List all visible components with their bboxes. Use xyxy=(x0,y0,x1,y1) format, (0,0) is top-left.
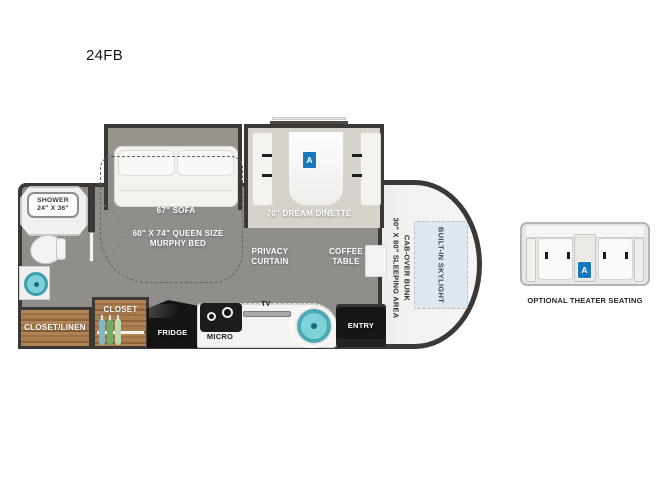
cupholder-mark xyxy=(545,252,548,259)
burner-icon xyxy=(222,307,233,318)
option-a-marker-dinette: A xyxy=(303,152,316,168)
cupholder-mark xyxy=(603,252,606,259)
tv xyxy=(243,311,291,317)
hanger-icon xyxy=(107,319,113,345)
fridge-label: FRIDGE xyxy=(158,328,188,337)
seatbelt-mark xyxy=(352,154,362,157)
privacy-curtain-label: PRIVACY CURTAIN xyxy=(251,247,288,267)
seatbelt-mark xyxy=(262,154,272,157)
hanger-icon xyxy=(115,319,121,345)
closet-label: CLOSET xyxy=(104,305,138,315)
closet-linen-label: CLOSET/LINEN xyxy=(24,323,86,333)
cupholder-mark xyxy=(625,252,628,259)
cupholder-mark xyxy=(567,252,570,259)
hanger-icon xyxy=(99,319,105,345)
microwave-cooktop xyxy=(200,303,242,332)
dinette-table xyxy=(288,132,344,206)
fridge-highlight xyxy=(149,304,196,318)
coffee-table-label: COFFEE TABLE xyxy=(329,247,363,267)
skylight-label: BUILT-IN SKYLIGHT xyxy=(437,227,446,303)
murphy-bed-label: 60" X 74" QUEEN SIZE MURPHY BED xyxy=(133,229,224,249)
optional-theater-seating: A OPTIONAL THEATER SEATING xyxy=(518,220,652,308)
coffee-table xyxy=(365,245,387,277)
cab-over-bunk-label: CAB-OVER BUNK 30" X 80" SLEEPING AREA xyxy=(390,218,413,319)
option-a-marker-theater: A xyxy=(578,262,591,278)
entry-label: ENTRY xyxy=(348,321,374,330)
closet: CLOSET xyxy=(92,297,149,349)
murphy-bed-outline xyxy=(100,156,243,283)
toilet-tank xyxy=(56,238,66,260)
bathroom-sink xyxy=(24,272,48,296)
bathroom-wall xyxy=(88,186,95,232)
dinette-bench-left xyxy=(252,132,273,206)
shower-label: SHOWER 24" X 36" xyxy=(27,192,79,218)
bathroom-door xyxy=(89,232,94,262)
dinette-bench-right xyxy=(360,132,381,206)
seatbelt-mark xyxy=(352,174,362,177)
seatbelt-mark xyxy=(262,174,272,177)
model-title: 24FB xyxy=(86,47,123,64)
tv-label: TV xyxy=(261,301,270,310)
sofa-label: 67" SOFA xyxy=(157,206,196,216)
floorplan-page: 24FB BUILT-IN SKYLIGHT CAB-OVER BUNK 30"… xyxy=(0,0,656,492)
entry-steps: ENTRY xyxy=(336,304,386,347)
burner-icon xyxy=(207,312,216,321)
kitchen-sink xyxy=(297,309,331,343)
theater-armrest-right xyxy=(634,238,644,282)
closet-linen: CLOSET/LINEN xyxy=(18,307,92,349)
theater-seating-label: OPTIONAL THEATER SEATING xyxy=(527,296,642,305)
micro-label: MICRO xyxy=(207,332,233,341)
theater-cushion-right xyxy=(598,238,633,280)
dinette-label: 70" DREAM DINETTE xyxy=(267,209,352,219)
theater-seat: A xyxy=(520,222,650,286)
fridge: FRIDGE xyxy=(147,300,198,348)
theater-cushion-left xyxy=(538,238,573,280)
slideout-topper-shadow xyxy=(270,121,348,124)
slideout-topper xyxy=(272,117,346,120)
theater-armrest-left xyxy=(526,238,536,282)
